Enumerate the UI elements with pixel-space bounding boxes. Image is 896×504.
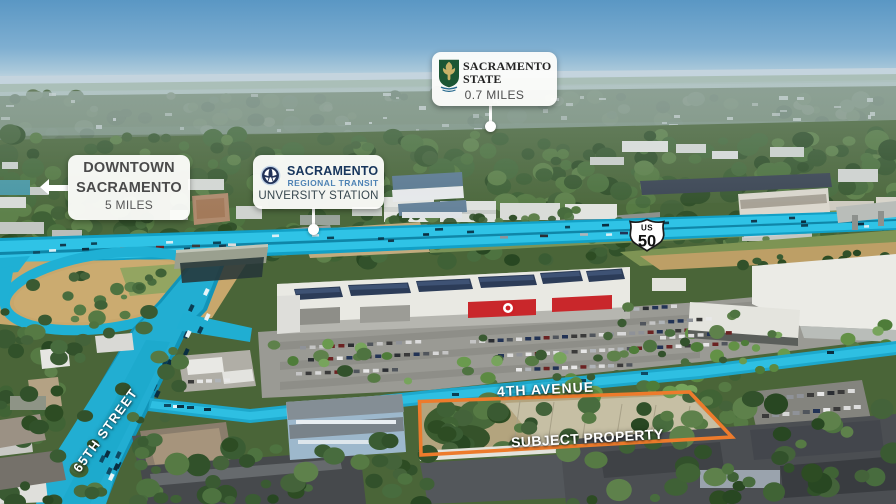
svg-text:US: US	[641, 224, 653, 233]
svg-text:50: 50	[638, 233, 656, 251]
